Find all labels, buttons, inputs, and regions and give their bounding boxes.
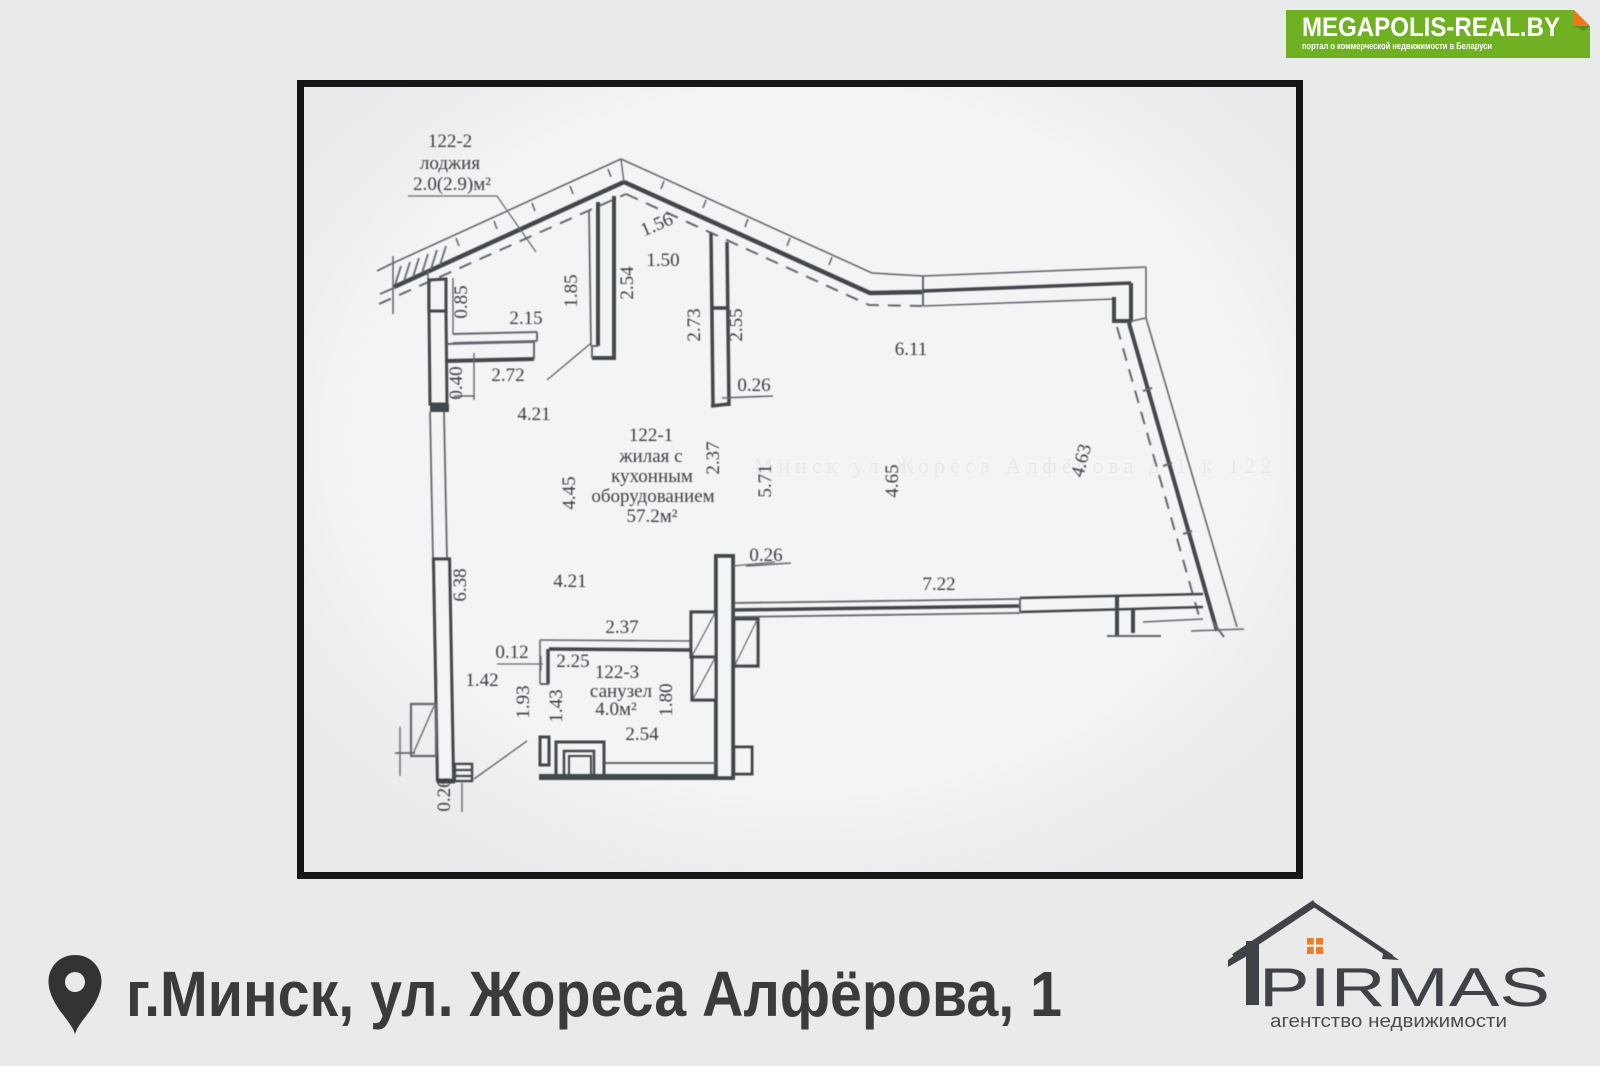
svg-text:2.37: 2.37: [703, 441, 724, 474]
svg-text:2.37: 2.37: [605, 617, 638, 638]
svg-text:0.12: 0.12: [495, 642, 528, 663]
svg-text:2.15: 2.15: [509, 308, 542, 329]
svg-text:2.73: 2.73: [684, 308, 705, 341]
svg-text:1.93: 1.93: [513, 685, 534, 718]
svg-text:122-1: 122-1: [629, 425, 673, 446]
svg-text:7.22: 7.22: [922, 574, 955, 595]
svg-text:2.25: 2.25: [556, 651, 589, 672]
svg-text:1.80: 1.80: [656, 683, 677, 716]
svg-text:оборудованием: оборудованием: [591, 486, 714, 507]
svg-text:0.26: 0.26: [749, 545, 782, 566]
svg-text:PIRMAS: PIRMAS: [1259, 956, 1550, 1018]
svg-text:Минск ул Жореса Алфёрова д 1 к: Минск ул Жореса Алфёрова д 1 к 122: [754, 453, 1276, 478]
svg-text:122-3: 122-3: [595, 662, 639, 683]
svg-text:1.50: 1.50: [646, 250, 679, 271]
svg-text:5.71: 5.71: [755, 464, 776, 497]
svg-text:4.21: 4.21: [553, 571, 586, 592]
svg-text:2.54: 2.54: [617, 266, 638, 300]
svg-text:2.54: 2.54: [625, 724, 659, 745]
svg-text:4.21: 4.21: [517, 404, 550, 425]
svg-text:2.55: 2.55: [726, 308, 747, 341]
svg-text:2.0(2.9)м²: 2.0(2.9)м²: [413, 174, 491, 195]
svg-text:0.26: 0.26: [737, 375, 770, 396]
svg-text:1.42: 1.42: [465, 670, 498, 691]
svg-text:кухонным: кухонным: [611, 466, 693, 487]
svg-text:4.45: 4.45: [559, 476, 580, 509]
svg-text:лоджия: лоджия: [420, 153, 480, 174]
svg-text:агентство недвижимости: агентство недвижимости: [1270, 1010, 1507, 1031]
svg-text:0.40: 0.40: [446, 366, 467, 399]
svg-text:MEGAPOLIS-REAL.BY: MEGAPOLIS-REAL.BY: [1302, 12, 1560, 42]
svg-text:0.85: 0.85: [451, 285, 472, 318]
svg-text:57.2м²: 57.2м²: [627, 506, 678, 527]
svg-text:0.26: 0.26: [434, 778, 455, 811]
svg-text:портал о коммерческой недвижим: портал о коммерческой недвижимости в Бел…: [1302, 41, 1492, 52]
svg-text:4.0м²: 4.0м²: [595, 699, 637, 720]
svg-text:жилая с: жилая с: [618, 446, 682, 467]
svg-text:г.Минск, ул. Жореса Алфёрова,: г.Минск, ул. Жореса Алфёрова, 1: [126, 958, 1062, 1030]
svg-text:4.65: 4.65: [882, 464, 903, 497]
svg-text:6.11: 6.11: [895, 339, 928, 360]
svg-text:2.72: 2.72: [491, 365, 524, 386]
svg-text:122-2: 122-2: [428, 131, 472, 152]
svg-text:6.38: 6.38: [450, 568, 471, 601]
svg-text:1.43: 1.43: [546, 689, 567, 722]
svg-text:1.85: 1.85: [561, 274, 582, 307]
